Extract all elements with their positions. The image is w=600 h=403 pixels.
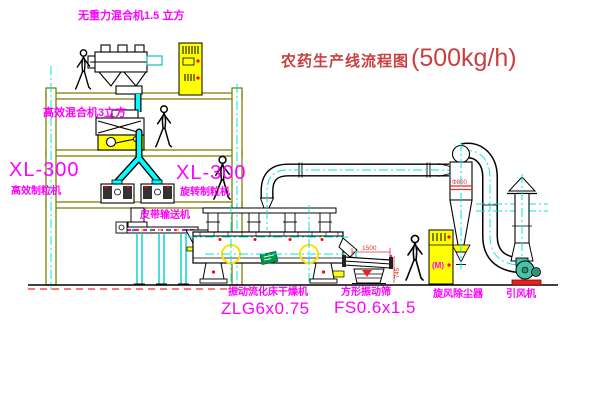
granulator-right-model-label: XL-300	[176, 163, 247, 183]
cyclone-exhaust-duct	[463, 151, 548, 265]
belt-conveyor	[116, 222, 198, 284]
induced-draft-fan	[512, 258, 541, 285]
granulator-right	[141, 180, 174, 203]
control-cabinet-top	[179, 43, 202, 95]
gravity-mixer	[88, 45, 162, 94]
dryer-model-label: ZLG6x0.75	[221, 300, 310, 317]
belt-conveyor-label: 皮带输送机	[140, 211, 190, 221]
fluid-bed-dryer	[186, 208, 357, 283]
granulator-left	[101, 180, 134, 203]
high-efficiency-mixer-label: 高效混合机3立方	[43, 108, 126, 119]
granulator-left-name-label: 高效制粒机	[11, 187, 61, 197]
drawing-title-capacity: (500kg/h)	[411, 46, 517, 71]
cad-drawing-canvas: Φ800 (M) 1500 745	[0, 0, 600, 403]
sieve-height-dim: 745	[395, 267, 401, 278]
induced-draft-fan-label: 引风机	[506, 290, 536, 300]
drawing-title: 农药生产线流程图 (500kg/h)	[281, 46, 517, 71]
worker-figure-second-floor	[156, 106, 172, 147]
sieve-length-dim: 1500	[362, 245, 377, 252]
gravity-mixer-label: 无重力混合机1.5 立方	[78, 11, 184, 22]
granulator-left-model-label: XL-300	[9, 160, 80, 180]
granulator-right-name-label: 旋转制粒机	[180, 188, 230, 198]
control-cabinet-cyclone: (M)	[429, 230, 453, 284]
worker-figure-ground	[406, 235, 423, 280]
sieve-name-label: 方形振动筛	[341, 288, 391, 298]
cyclone-label: 旋风除尘器	[433, 290, 483, 300]
cyclone-diameter-dim: Φ800	[452, 180, 467, 186]
motor-symbol: (M)	[432, 261, 444, 270]
sieve-model-label: FS0.6x1.5	[334, 299, 416, 316]
drawing-title-text: 农药生产线流程图	[281, 54, 409, 69]
dryer-name-label: 振动流化床干燥机	[228, 288, 308, 298]
